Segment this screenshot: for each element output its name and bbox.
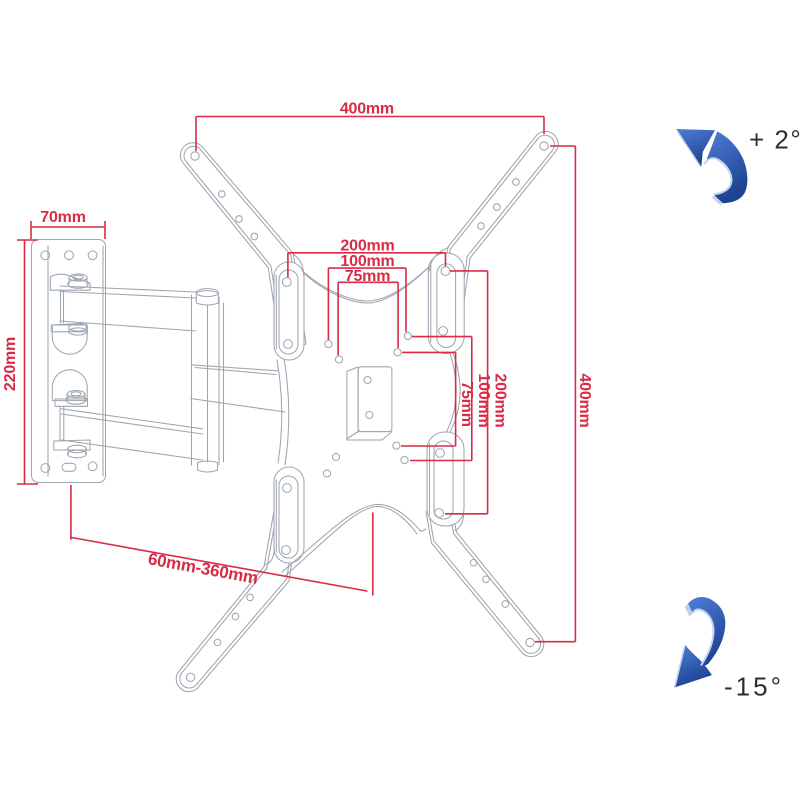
svg-text:60mm-360mm: 60mm-360mm (146, 549, 259, 588)
svg-text:200mm: 200mm (492, 373, 509, 427)
svg-text:400mm: 400mm (576, 373, 593, 427)
svg-text:70mm: 70mm (40, 209, 85, 226)
svg-text:75mm: 75mm (458, 381, 475, 426)
svg-text:400mm: 400mm (340, 101, 394, 118)
svg-text:+ 2°: + 2° (749, 125, 800, 155)
svg-text:100mm: 100mm (475, 373, 492, 427)
svg-text:220mm: 220mm (2, 337, 19, 391)
svg-text:200mm: 200mm (340, 238, 394, 255)
svg-text:75mm: 75mm (345, 268, 390, 285)
svg-text:-15°: -15° (724, 672, 784, 702)
